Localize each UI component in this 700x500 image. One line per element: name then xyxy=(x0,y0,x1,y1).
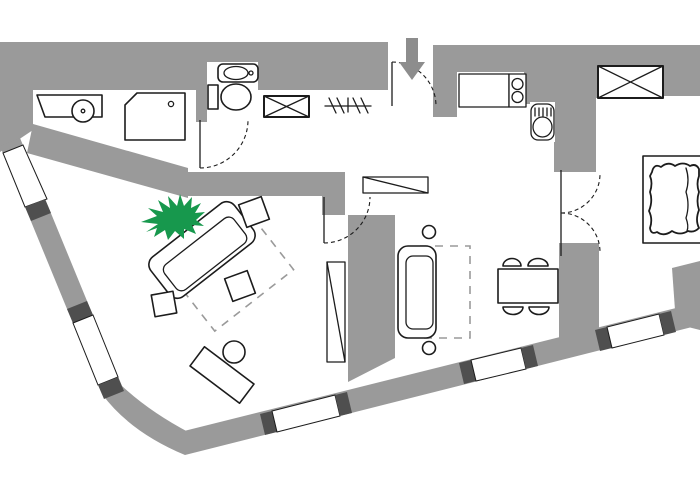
wall-mid-vertical xyxy=(348,215,395,382)
square-stool xyxy=(151,291,176,316)
wall-bath-divider xyxy=(196,83,207,122)
wall-entry-kitchen xyxy=(433,45,457,117)
small-sofa xyxy=(398,246,436,338)
wall-kitchen-north-east xyxy=(524,62,596,104)
toilet xyxy=(208,84,251,110)
wall-top-band xyxy=(0,42,390,90)
radiator-vertical xyxy=(327,262,345,362)
bed xyxy=(643,156,700,243)
stove xyxy=(509,74,526,107)
floor-plan-canvas xyxy=(0,0,700,500)
side-table-bottom xyxy=(423,342,436,355)
sideboard xyxy=(363,177,428,193)
wall-kitchen-bedroom xyxy=(554,104,596,172)
shower-head xyxy=(168,101,173,106)
bedroom-wardrobe xyxy=(598,66,663,98)
hand-sink xyxy=(218,64,258,82)
vanity-drain xyxy=(81,109,85,113)
floor-plan-page xyxy=(0,0,700,500)
dining-table xyxy=(498,269,558,303)
shower xyxy=(125,93,185,140)
hall-wardrobe xyxy=(264,96,309,117)
side-table-top xyxy=(423,226,436,239)
kitchen-sink xyxy=(531,104,554,140)
kitchen-counter xyxy=(459,74,509,107)
